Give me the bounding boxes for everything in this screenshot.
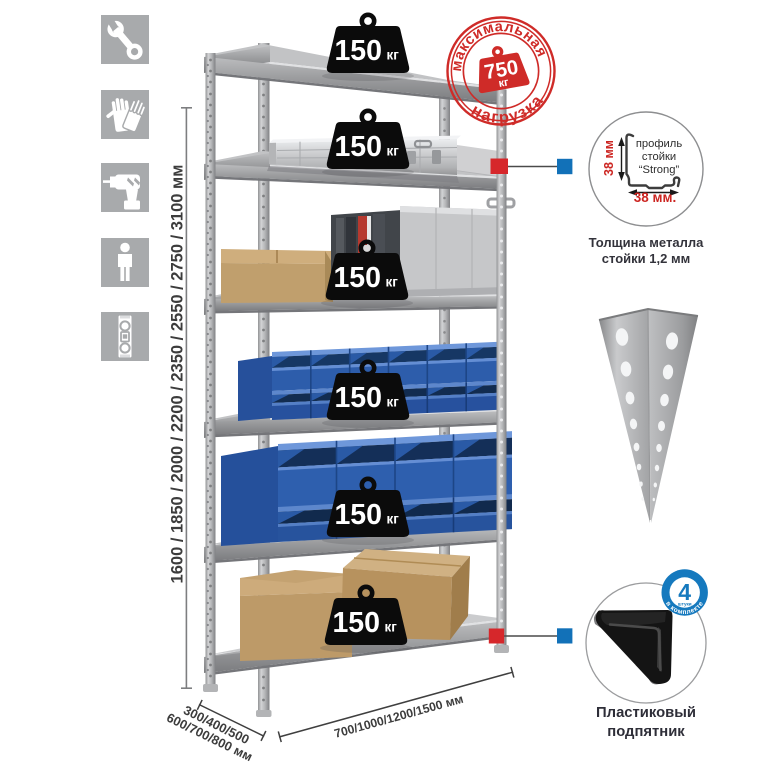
svg-text:стойки 1,2 мм: стойки 1,2 мм — [602, 251, 690, 266]
svg-text:стойки: стойки — [642, 151, 676, 163]
svg-text:Пластиковый: Пластиковый — [596, 705, 696, 721]
svg-text:“Strong”: “Strong” — [639, 164, 680, 176]
svg-text:профиль: профиль — [636, 138, 682, 150]
svg-text:38 мм: 38 мм — [602, 140, 616, 176]
svg-text:подпятник: подпятник — [607, 724, 685, 740]
svg-text:Толщина металла: Толщина металла — [589, 235, 704, 250]
svg-text:38 мм.: 38 мм. — [634, 190, 677, 205]
svg-text:1600 / 1850 / 2000 / 2200 / 23: 1600 / 1850 / 2000 / 2200 / 2350 / 2550 … — [169, 165, 187, 584]
svg-text:штуки: штуки — [678, 601, 692, 606]
